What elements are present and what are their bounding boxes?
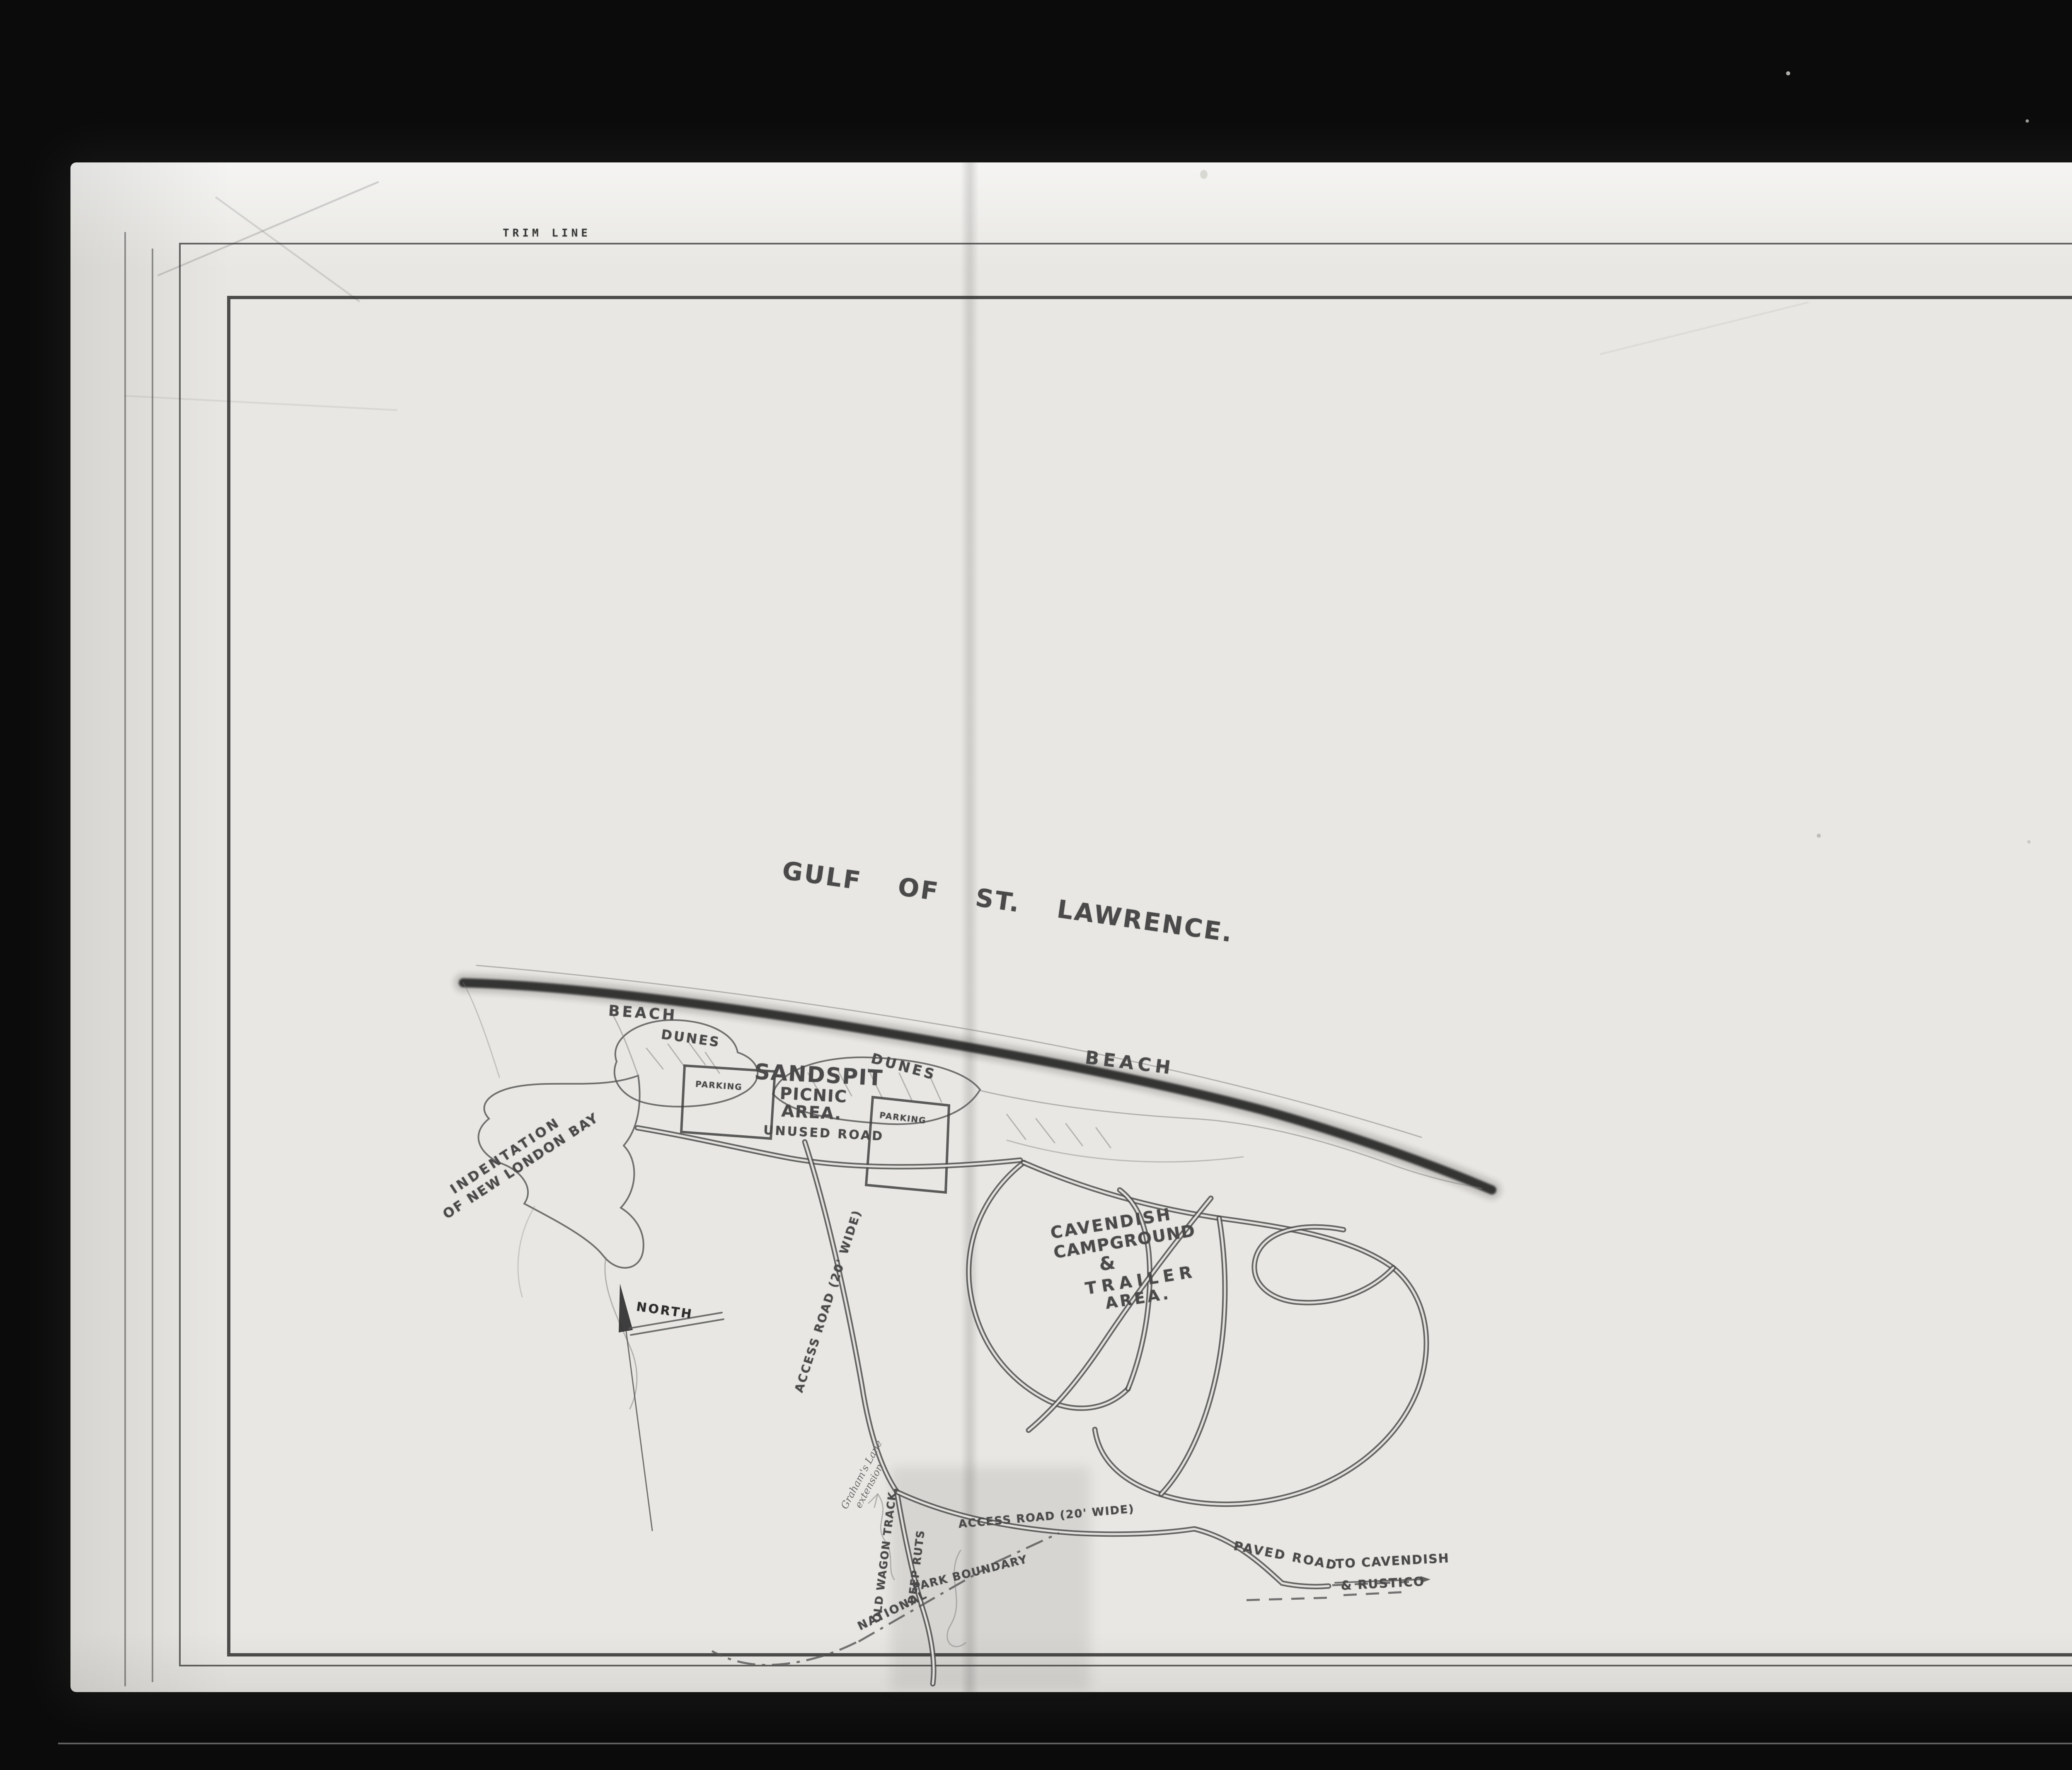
roads-group [637,1128,1409,1684]
microfilm-frame: GULF OF ST. LAWRENCE. BEACH DUNES DUNES … [0,0,2072,1770]
to-cavendish-label: TO CAVENDISH & RUSTICO [1335,1551,1451,1593]
map-drawing [0,0,2072,1770]
film-speck [1200,170,1208,179]
north-arrow-group [619,1284,724,1531]
bay-group [479,1010,644,1409]
sandspit-label: SANDSPIT PICNIC AREA. [752,1061,884,1125]
paper-speck [2027,840,2031,844]
dunes-group [615,1020,1481,1188]
paper-speck [1817,834,1821,838]
film-edge-line [58,1743,2072,1744]
shoreline-group [463,965,1492,1190]
film-speck [2026,119,2029,123]
trim-line-label-top: TRIM LINE [503,227,591,239]
campground-loops-group [969,1163,1426,1504]
film-speck [1786,71,1790,75]
